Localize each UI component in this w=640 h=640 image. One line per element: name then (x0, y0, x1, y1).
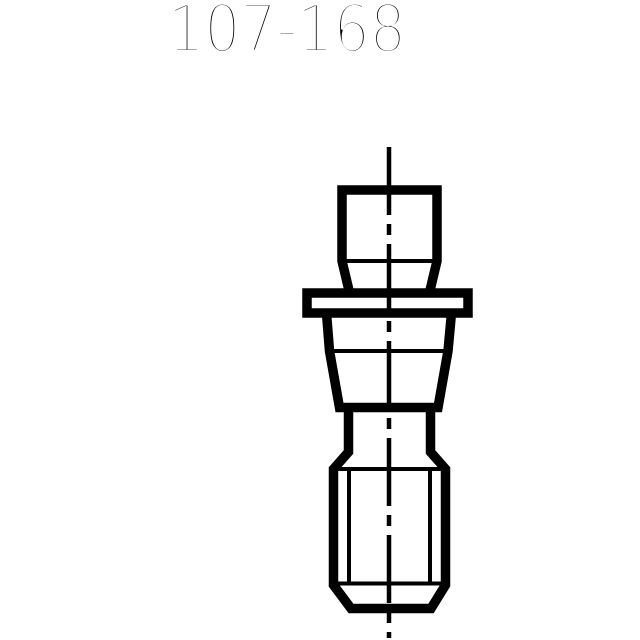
technical-drawing: 107-168 (0, 0, 640, 640)
drawing-number: 107-168 (168, 0, 406, 67)
drawing-canvas: 107-168 (0, 0, 640, 640)
